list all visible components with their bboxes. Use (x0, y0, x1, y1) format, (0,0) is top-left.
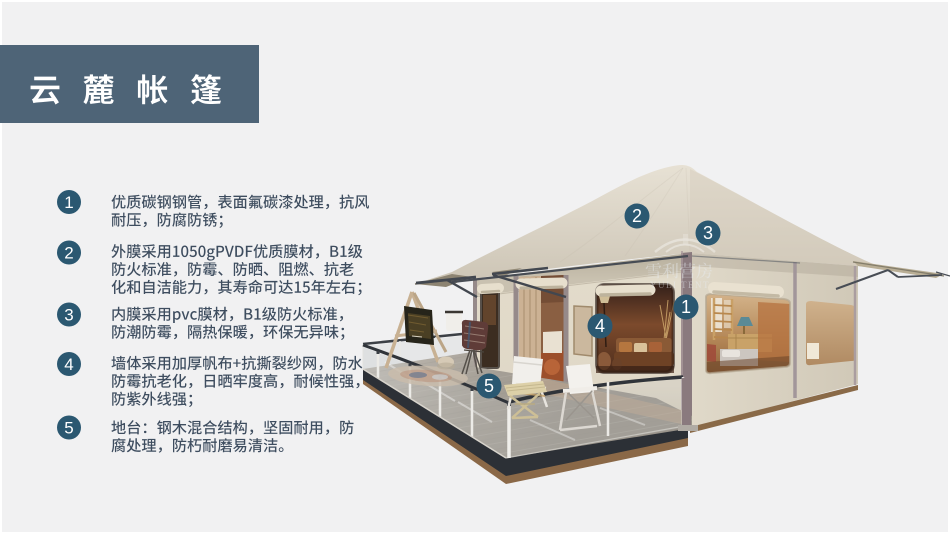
svg-text:3: 3 (64, 306, 73, 325)
svg-text:5: 5 (484, 376, 494, 396)
svg-text:1: 1 (64, 193, 73, 212)
svg-text:1: 1 (681, 297, 691, 317)
svg-text:2: 2 (632, 206, 642, 226)
svg-text:YULI TENT: YULI TENT (650, 280, 710, 290)
svg-text:4: 4 (64, 355, 73, 374)
svg-text:2: 2 (64, 244, 73, 263)
svg-text:4: 4 (595, 316, 605, 336)
svg-text:5: 5 (64, 419, 73, 438)
svg-text:3: 3 (703, 223, 713, 243)
